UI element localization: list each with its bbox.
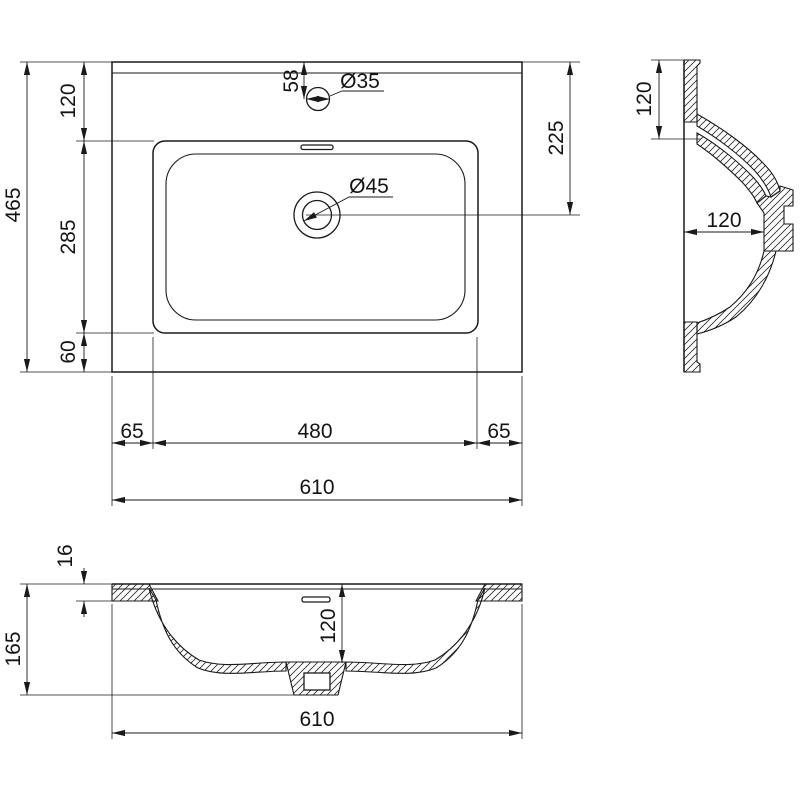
dim-drain-hole: Ø45 bbox=[304, 175, 580, 221]
front-section-view: 16 165 120 610 bbox=[2, 544, 522, 739]
dim-deck-thickness: 16 bbox=[20, 544, 112, 617]
dim-label-bowl-depth: 120 bbox=[317, 608, 340, 643]
dim-side-outlet-depth: 120 bbox=[684, 209, 764, 232]
dim-label-plan-total-width: 610 bbox=[299, 476, 334, 499]
dim-front-band: 60 bbox=[57, 333, 84, 372]
dim-label-margin-left: 65 bbox=[120, 420, 143, 443]
side-top-rim-cut bbox=[684, 60, 700, 122]
washbasin-technical-drawing: 465 120 285 60 58 Ø35 bbox=[0, 0, 800, 800]
overflow-slot-plan bbox=[301, 145, 333, 150]
dim-back-band: 120 bbox=[57, 62, 154, 141]
dim-label-basin-width: 480 bbox=[297, 420, 332, 443]
technical-drawing-page: 465 120 285 60 58 Ø35 bbox=[0, 0, 800, 800]
dim-tap-offset: 58 bbox=[280, 62, 304, 99]
dim-label-deck-thickness: 16 bbox=[54, 544, 77, 567]
dim-label-front-band: 60 bbox=[57, 340, 80, 363]
dim-label-drain-offset: 225 bbox=[545, 120, 568, 155]
dim-label-side-upper-height: 120 bbox=[633, 81, 656, 116]
dim-label-tap-offset: 58 bbox=[280, 69, 303, 92]
dim-bowl-depth: 120 bbox=[317, 584, 342, 663]
side-overflow-outer-wall bbox=[697, 114, 780, 197]
plan-view: 465 120 285 60 58 Ø35 bbox=[2, 62, 580, 506]
dim-bottom-rows: 65 480 65 610 bbox=[112, 337, 522, 506]
dim-label-side-outlet-depth: 120 bbox=[706, 209, 741, 232]
dim-label-front-total-height: 165 bbox=[2, 631, 25, 666]
dim-label-tap-hole: Ø35 bbox=[340, 70, 380, 93]
dim-label-drain-hole: Ø45 bbox=[349, 175, 389, 198]
dim-label-margin-right: 65 bbox=[487, 420, 510, 443]
dim-label-front-total-width: 610 bbox=[299, 708, 334, 731]
front-right-bowl-wall bbox=[346, 588, 485, 673]
dim-drain-offset: 225 bbox=[522, 62, 580, 215]
overflow-slot-front bbox=[302, 597, 330, 602]
dim-label-basin-depth: 285 bbox=[57, 219, 80, 254]
front-drain-hole bbox=[304, 673, 330, 690]
dim-label-back-band: 120 bbox=[57, 83, 80, 118]
dim-label-total-depth: 465 bbox=[2, 187, 25, 222]
side-section-view: 120 120 bbox=[633, 60, 793, 372]
front-left-bowl-wall bbox=[149, 588, 286, 673]
side-bowl-wall bbox=[697, 251, 776, 334]
dim-basin-depth: 285 bbox=[57, 141, 154, 333]
